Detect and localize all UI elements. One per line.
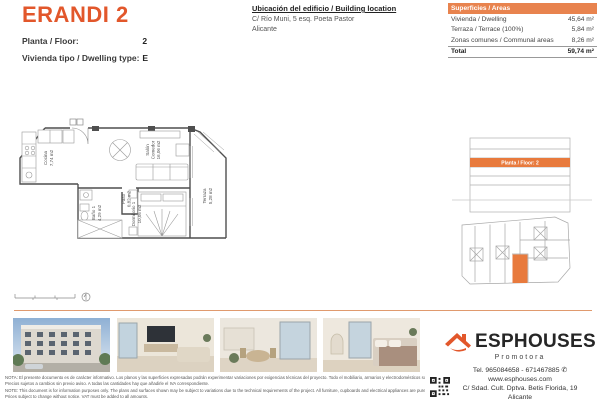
highlighted-unit: [513, 255, 528, 284]
room-area-terraza: 5,28 m2: [208, 187, 213, 204]
brand-name: ESPHOUSES: [475, 331, 596, 353]
floor-value: 2: [142, 36, 147, 46]
dwelling-type-label: Vivienda tipo / Dwelling type:: [22, 53, 140, 63]
brand-logo: ESPHOUSES: [440, 331, 600, 353]
row-value: 5,84 m²: [572, 26, 594, 34]
room-name-paso: Paso: [121, 193, 126, 204]
house-logo-icon: [444, 331, 472, 353]
room-area-dormitorio: 10,05 m2: [137, 204, 142, 223]
building-location-street: C/ Río Muni, 5 esq. Poeta Pastor: [252, 15, 432, 25]
photo-building-exterior: [13, 318, 110, 372]
stair-core-icons: [470, 227, 547, 261]
row-label: Vivienda / Dwelling: [451, 16, 507, 24]
row-value: 8,26 m²: [572, 37, 594, 45]
terrace-hatch: [190, 132, 224, 226]
room-area-bano: 4,29 m2: [97, 204, 102, 221]
site-plan-diagram: [450, 210, 600, 305]
contact-website: www.esphouses.com: [440, 375, 600, 384]
plan-walls: [20, 128, 226, 238]
building-location-city: Alicante: [252, 25, 432, 35]
room-name-bano: Baño 1: [91, 205, 96, 220]
areas-table: Superficies / Areas Vivienda / Dwelling …: [448, 3, 597, 58]
elevation-outline: [452, 138, 592, 212]
brochure-page: ERANDI 2 Planta / Floor: 2 Vivienda tipo…: [0, 0, 600, 400]
floor-plan-drawing: Cocina 7,74 m2 Salón Comedor 16,06 m2 Ba…: [8, 86, 240, 311]
contact-city: Alicante: [440, 393, 600, 400]
building-elevation-diagram: Planta / Floor: 2: [450, 130, 600, 220]
photo-living-room: [117, 318, 214, 372]
floor-row: Planta / Floor: 2: [22, 36, 232, 46]
photo-bedroom: [323, 318, 420, 372]
room-name-salon-1: Salón: [145, 144, 150, 156]
table-row-total: Total 59,74 m²: [448, 46, 597, 59]
scale-bar: [15, 294, 75, 300]
whatsapp-icon: ✆: [561, 367, 567, 374]
footer-divider: [14, 310, 592, 311]
highlighted-floor-label: Planta / Floor: 2: [501, 161, 539, 167]
brand-subtitle: Promotora: [440, 354, 600, 361]
photo-kitchen-dining: [220, 318, 317, 372]
total-value: 59,74 m²: [568, 48, 594, 56]
qr-code: [430, 377, 450, 397]
building-location-title: Ubicación del edificio / Building locati…: [252, 4, 432, 14]
room-name-salon-2: Comedor: [151, 140, 156, 159]
row-value: 45,64 m²: [568, 16, 594, 24]
table-row-terrace: Terraza / Terrace (100%) 5,84 m²: [448, 25, 597, 36]
page-title: ERANDI 2: [22, 2, 129, 28]
room-area-cocina: 7,74 m2: [49, 149, 54, 166]
row-label: Terraza / Terrace (100%): [451, 26, 523, 34]
contact-block: Tel. 965084658 - 671467885 ✆ www.esphous…: [440, 366, 600, 400]
table-row-communal: Zonas comunes / Communal areas 8,26 m²: [448, 35, 597, 46]
room-name-terraza: Terraza: [202, 188, 207, 204]
total-label: Total: [451, 48, 466, 56]
north-compass-icon: [82, 293, 90, 301]
contact-address: C/ Sdad. Cult. Dptva. Betis Florida, 19: [440, 384, 600, 393]
row-label: Zonas comunes / Communal areas: [451, 37, 554, 45]
dwelling-type-value: E: [142, 53, 148, 63]
room-area-salon: 16,06 m2: [156, 140, 161, 159]
contact-phone-line: Tel. 965084658 - 671467885 ✆: [440, 366, 600, 375]
disclaimer-en-2: Prices subject to change without notice.…: [5, 394, 425, 400]
window-symbol-icon: [70, 119, 83, 125]
floor-label: Planta / Floor:: [22, 36, 140, 46]
entry-door-icon: [72, 128, 88, 144]
contact-phone: Tel. 965084658 - 671467885: [473, 367, 560, 374]
table-row-dwelling: Vivienda / Dwelling 45,64 m²: [448, 14, 597, 25]
room-name-cocina: Cocina: [43, 151, 48, 166]
building-location-block: Ubicación del edificio / Building locati…: [252, 4, 432, 35]
areas-table-header: Superficies / Areas: [448, 3, 597, 14]
kitchen-fittings: [22, 130, 74, 182]
dwelling-type-row: Vivienda tipo / Dwelling type: E: [22, 53, 232, 63]
legal-disclaimer: NOTA: El presente documento es de caráct…: [5, 375, 425, 400]
room-name-dormitorio: Dormitorio 1: [131, 201, 136, 226]
